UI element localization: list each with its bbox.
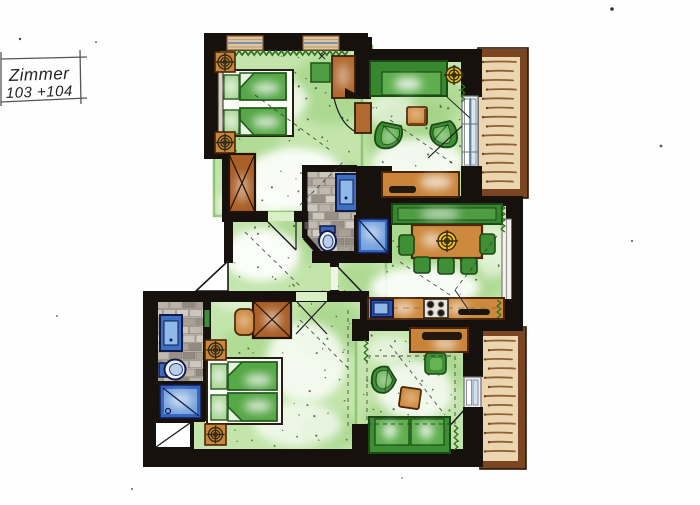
svg-text:Zimmer: Zimmer (7, 64, 70, 85)
svg-text:103 +104: 103 +104 (6, 83, 74, 102)
